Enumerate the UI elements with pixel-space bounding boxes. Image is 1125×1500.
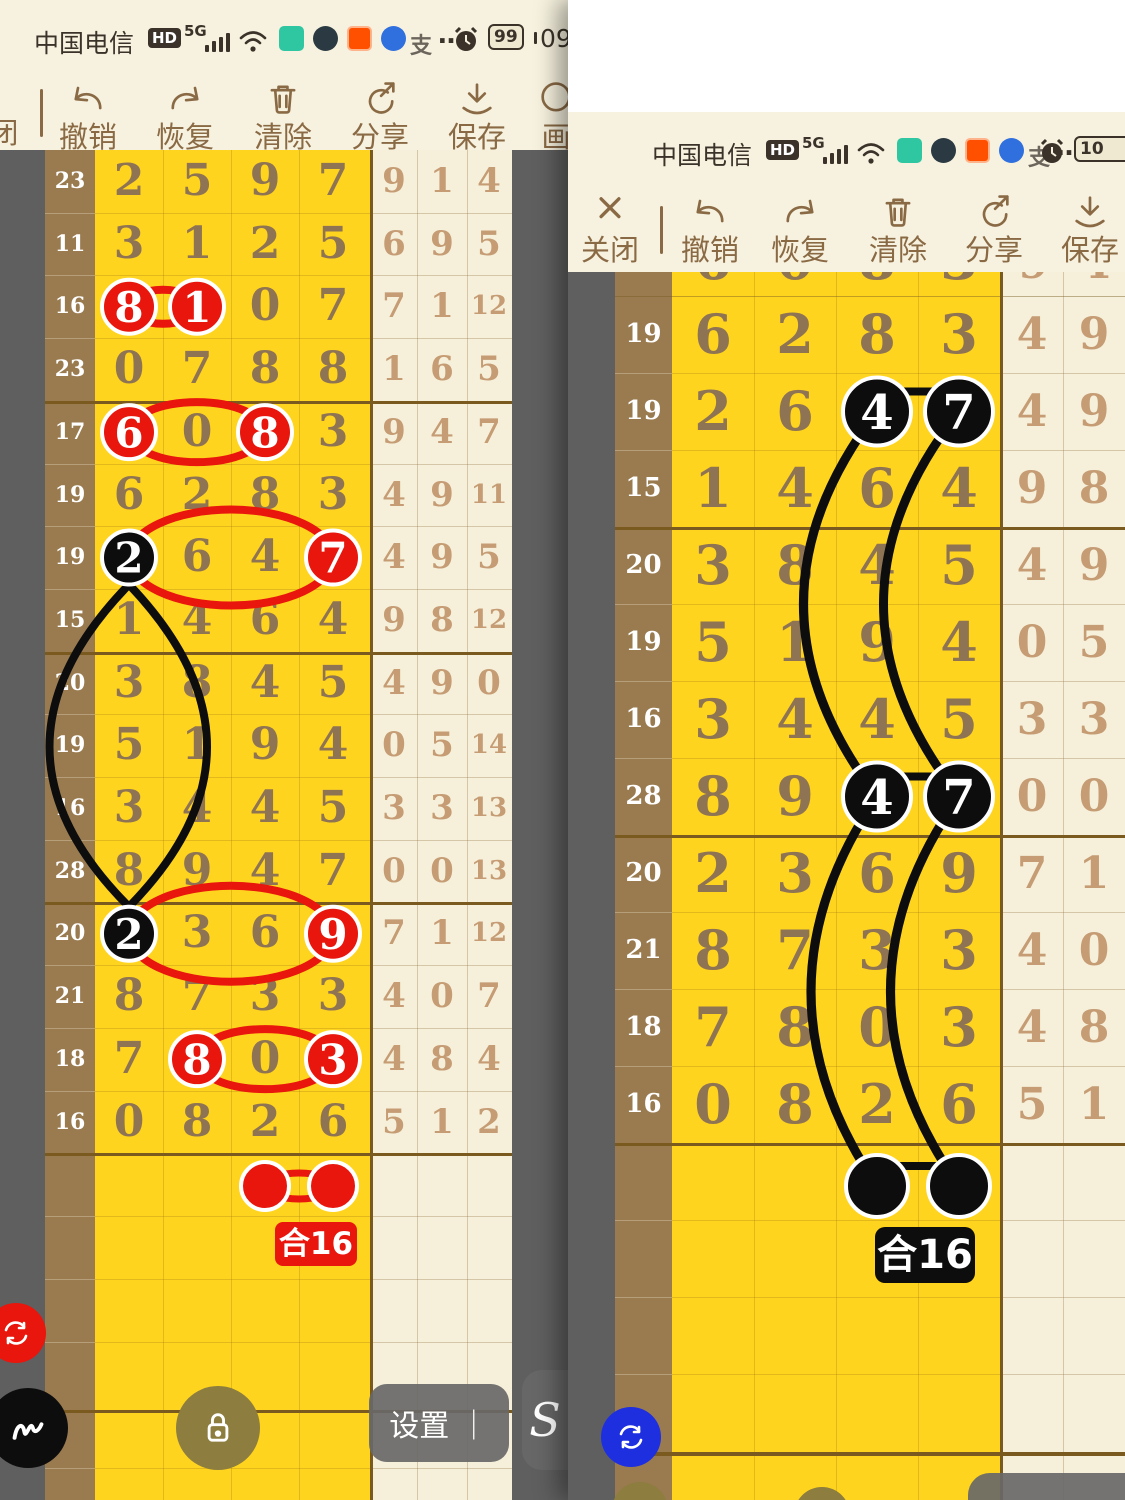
gridline: [45, 1468, 95, 1469]
gridline: [373, 1342, 512, 1343]
digit-cell[interactable]: 1: [163, 714, 231, 777]
digit-cell[interactable]: 13: [466, 777, 512, 840]
trash-icon: [263, 102, 303, 121]
digit-cell[interactable]: 4: [231, 777, 299, 840]
digit-cell[interactable]: 3: [836, 912, 918, 989]
share-button[interactable]: 分享: [944, 192, 1044, 266]
redo-button[interactable]: 恢复: [750, 192, 850, 266]
digit-cell[interactable]: 9: [918, 835, 1000, 912]
digit-cell[interactable]: 7: [163, 338, 231, 401]
row-label: 19: [45, 526, 95, 589]
toolbar: 关闭 撤销 恢复 清除 分享 保存: [568, 188, 1125, 272]
settings-bar-partial[interactable]: [968, 1473, 1125, 1500]
digit-cell[interactable]: 9: [231, 714, 299, 777]
carrier-label: 中国电信: [652, 136, 752, 172]
row-label: 16: [45, 777, 95, 840]
row-label: 21: [45, 965, 95, 1028]
scribble-icon: [6, 1408, 50, 1448]
digit-cell[interactable]: 0: [419, 840, 465, 903]
row-label: 19: [45, 714, 95, 777]
digit-cell[interactable]: 9: [1064, 373, 1124, 450]
digit-cell[interactable]: 8: [754, 989, 836, 1066]
digit-cell[interactable]: 8: [163, 1028, 231, 1091]
clear-button[interactable]: 清除: [233, 79, 333, 153]
digit-cell[interactable]: 7: [918, 758, 1000, 835]
digit-cell[interactable]: 7: [1002, 835, 1062, 912]
taobao-icon: [347, 26, 372, 51]
digit-cell[interactable]: 8: [419, 1028, 465, 1091]
alipay-icon: 支: [410, 28, 432, 60]
digit-cell[interactable]: 4: [163, 589, 231, 652]
gridline: [417, 150, 418, 1500]
left-chart-canvas[interactable]: 2325979141131256951681077112230788165176…: [0, 150, 568, 1500]
digit-cell[interactable]: 4: [836, 527, 918, 604]
digit-cell-partial: 4: [1065, 272, 1125, 292]
row-label: 15: [615, 450, 672, 527]
digit-cell-partial: 8: [836, 272, 918, 292]
gridline: [615, 1374, 672, 1375]
battery-indicator: 99: [488, 24, 524, 50]
digit-cell[interactable]: 0: [95, 1091, 163, 1154]
toolbar: 闭 撤销 恢复 清除 分享 保存: [0, 75, 568, 152]
carrier-label: 中国电信: [34, 24, 134, 60]
digit-cell[interactable]: 2: [672, 373, 754, 450]
digit-cell[interactable]: 0: [836, 989, 918, 1066]
digit-cell[interactable]: 4: [754, 450, 836, 527]
digit-cell[interactable]: 4: [918, 450, 1000, 527]
digit-cell[interactable]: 2: [672, 835, 754, 912]
digit-cell[interactable]: 2: [95, 526, 163, 589]
row-label: 19: [45, 464, 95, 527]
close-button[interactable]: 关闭: [568, 192, 660, 266]
digit-cell[interactable]: 3: [918, 912, 1000, 989]
battery-nub: [534, 32, 537, 44]
hd-badge: HD: [766, 140, 799, 160]
digit-cell[interactable]: 5: [371, 1091, 417, 1154]
digit-cell-partial: 6: [672, 272, 754, 292]
digit-cell[interactable]: 6: [836, 835, 918, 912]
redo-icon: [165, 102, 205, 121]
digit-cell[interactable]: 1: [1064, 835, 1124, 912]
digit-cell[interactable]: 5: [466, 338, 512, 401]
digit-cell[interactable]: 1: [1064, 1066, 1124, 1143]
digit-cell[interactable]: 3: [299, 1028, 367, 1091]
draw-icon: [536, 102, 568, 121]
statusbar: 中国电信 HD 5G 支 … 10: [568, 112, 1125, 188]
gridline: [95, 1216, 372, 1217]
row-label: 11: [45, 213, 95, 276]
digit-cell[interactable]: 7: [754, 912, 836, 989]
digit-cell[interactable]: 3: [918, 989, 1000, 1066]
digit-cell[interactable]: 8: [754, 1066, 836, 1143]
gridline: [373, 1468, 512, 1469]
sum-badge-red: 合16: [275, 1222, 357, 1266]
digit-cell[interactable]: 2: [836, 1066, 918, 1143]
app-icon-green: [897, 138, 922, 163]
digit-cell[interactable]: 2: [163, 464, 231, 527]
digit-cell[interactable]: 3: [371, 777, 417, 840]
app-icon-green: [279, 26, 304, 51]
digit-cell[interactable]: 8: [95, 840, 163, 903]
digit-cell[interactable]: 8: [163, 1091, 231, 1154]
digit-cell[interactable]: 2: [466, 1091, 512, 1154]
digit-cell[interactable]: 0: [371, 714, 417, 777]
row-label: 28: [45, 840, 95, 903]
digit-cell[interactable]: 5: [466, 526, 512, 589]
digit-cell[interactable]: 6: [371, 213, 417, 276]
row-label: 20: [45, 652, 95, 715]
left-screenshot-panel: 中国电信 HD 5G 支 … 99 09:: [0, 0, 568, 1500]
redo-icon: [780, 215, 820, 234]
digit-cell[interactable]: 9: [419, 652, 465, 715]
digit-cell[interactable]: 9: [754, 758, 836, 835]
row-label: 17: [45, 401, 95, 464]
digit-cell[interactable]: 1: [163, 213, 231, 276]
digit-cell[interactable]: 6: [918, 1066, 1000, 1143]
digit-cell[interactable]: 8: [419, 589, 465, 652]
digit-cell[interactable]: 5: [95, 714, 163, 777]
digit-cell[interactable]: 3: [672, 681, 754, 758]
digit-cell[interactable]: 5: [299, 213, 367, 276]
digit-cell[interactable]: 4: [299, 589, 367, 652]
digit-cell[interactable]: 12: [466, 589, 512, 652]
digit-cell[interactable]: 8: [836, 296, 918, 373]
group-divider: [615, 1143, 1125, 1146]
digit-cell[interactable]: 6: [231, 589, 299, 652]
white-top-strip: [568, 0, 1125, 112]
row-label: 23: [45, 338, 95, 401]
digit-cell[interactable]: 9: [419, 526, 465, 589]
digit-cell[interactable]: 6: [754, 373, 836, 450]
digit-cell[interactable]: 3: [299, 464, 367, 527]
digit-cell[interactable]: 7: [371, 902, 417, 965]
digit-cell[interactable]: 7: [371, 275, 417, 338]
wechat-icon: [931, 138, 956, 163]
digit-cell[interactable]: 0: [1064, 912, 1124, 989]
digit-cell[interactable]: 14: [466, 714, 512, 777]
digit-cell[interactable]: 6: [95, 401, 163, 464]
digit-cell[interactable]: 4: [1002, 912, 1062, 989]
digit-cell[interactable]: 5: [299, 652, 367, 715]
browser-icon: [999, 138, 1024, 163]
taobao-icon: [965, 138, 990, 163]
digit-cell[interactable]: 4: [419, 401, 465, 464]
digit-cell[interactable]: 7: [299, 840, 367, 903]
digit-cell[interactable]: 0: [231, 1028, 299, 1091]
digit-cell[interactable]: 3: [95, 777, 163, 840]
digit-cell[interactable]: 7: [466, 401, 512, 464]
wifi-icon: [856, 140, 886, 170]
row-label: 15: [45, 589, 95, 652]
alarm-icon: [1038, 138, 1066, 170]
digit-cell[interactable]: 9: [1002, 450, 1062, 527]
digit-cell[interactable]: 8: [95, 275, 163, 338]
digit-cell-partial: 9: [1003, 272, 1064, 292]
browser-icon: [381, 26, 406, 51]
row-label: 19: [615, 604, 672, 681]
digit-cell[interactable]: 4: [371, 1028, 417, 1091]
digit-cell[interactable]: 8: [163, 652, 231, 715]
digit-cell[interactable]: 2: [231, 1091, 299, 1154]
digit-cell[interactable]: 4: [836, 681, 918, 758]
digit-cell[interactable]: 2: [95, 150, 163, 213]
row-label: 16: [45, 275, 95, 338]
digit-cell[interactable]: 5: [466, 213, 512, 276]
gridline: [672, 1220, 1000, 1221]
alarm-icon: [452, 26, 480, 58]
digit-cell[interactable]: 5: [918, 527, 1000, 604]
digit-cell[interactable]: 4: [1002, 296, 1062, 373]
gridline: [615, 1220, 672, 1221]
digit-cell[interactable]: 0: [672, 1066, 754, 1143]
group-divider: [615, 1452, 1125, 1456]
digit-cell[interactable]: 4: [836, 373, 918, 450]
digit-cell[interactable]: 5: [672, 604, 754, 681]
digit-cell[interactable]: 8: [672, 758, 754, 835]
digit-cell[interactable]: 0: [1002, 604, 1062, 681]
undo-button[interactable]: 撤销: [660, 192, 760, 266]
digit-cell[interactable]: 6: [836, 450, 918, 527]
right-screenshot-panel: 中国电信 HD 5G 支 … 10 关闭: [568, 0, 1125, 1500]
digit-cell[interactable]: 9: [1064, 296, 1124, 373]
statusbar: 中国电信 HD 5G 支 … 99 09:: [0, 0, 568, 75]
sum-badge-black: 合16: [875, 1227, 975, 1283]
digit-cell[interactable]: 5: [299, 777, 367, 840]
digit-cell[interactable]: 12: [466, 902, 512, 965]
row-label: 19: [615, 373, 672, 450]
undo-icon: [690, 215, 730, 234]
gridline: [95, 1279, 372, 1280]
digit-cell-partial: 0: [754, 272, 836, 292]
digit-cell[interactable]: 9: [419, 464, 465, 527]
draw-button[interactable]: 画: [506, 79, 568, 153]
gridline: [1003, 1297, 1125, 1298]
digit-cell[interactable]: 9: [299, 902, 367, 965]
digit-cell[interactable]: 0: [231, 275, 299, 338]
digit-cell[interactable]: 2: [754, 296, 836, 373]
digit-cell[interactable]: 3: [672, 527, 754, 604]
signal-icon: [204, 30, 232, 58]
gridline: [615, 1297, 672, 1298]
digit-cell[interactable]: 8: [1064, 450, 1124, 527]
undo-icon: [68, 102, 108, 121]
row-label: 16: [615, 681, 672, 758]
row-label: 16: [45, 1091, 95, 1154]
digit-cell[interactable]: 4: [1002, 373, 1062, 450]
digit-cell[interactable]: 3: [419, 777, 465, 840]
pen-s-button[interactable]: S: [522, 1370, 568, 1470]
digit-cell[interactable]: 5: [163, 150, 231, 213]
gridline: [373, 1216, 512, 1217]
right-chart-canvas[interactable]: 6083941962834919264749151464982038454919…: [568, 272, 1125, 1500]
save-icon: [1070, 215, 1110, 234]
digit-cell[interactable]: 3: [754, 835, 836, 912]
digit-cell[interactable]: 1: [163, 275, 231, 338]
digit-cell[interactable]: 8: [231, 401, 299, 464]
digit-cell[interactable]: 4: [466, 1028, 512, 1091]
digit-cell[interactable]: 5: [1064, 604, 1124, 681]
digit-cell[interactable]: 7: [95, 1028, 163, 1091]
digit-cell[interactable]: 8: [231, 464, 299, 527]
gridline: [45, 1279, 95, 1280]
share-button[interactable]: 分享: [330, 79, 430, 153]
digit-cell[interactable]: 8: [299, 338, 367, 401]
digit-cell[interactable]: 3: [95, 652, 163, 715]
digit-cell[interactable]: 7: [466, 965, 512, 1028]
digit-cell[interactable]: 0: [1064, 758, 1124, 835]
row-label: 18: [615, 989, 672, 1066]
digit-cell[interactable]: 6: [231, 902, 299, 965]
digit-cell[interactable]: 9: [371, 589, 417, 652]
digit-cell[interactable]: 9: [163, 840, 231, 903]
gridline: [373, 1279, 512, 1280]
digit-cell[interactable]: 7: [299, 275, 367, 338]
digit-cell[interactable]: 8: [1064, 989, 1124, 1066]
group-divider: [45, 1153, 512, 1156]
row-label: 18: [45, 1028, 95, 1091]
digit-cell[interactable]: 3: [918, 296, 1000, 373]
row-label: 16: [615, 1066, 672, 1143]
wifi-icon: [238, 28, 268, 58]
digit-cell[interactable]: 3: [95, 213, 163, 276]
digit-cell[interactable]: 4: [1002, 527, 1062, 604]
digit-cell[interactable]: 1: [371, 338, 417, 401]
digit-cell[interactable]: 3: [1002, 681, 1062, 758]
digit-cell[interactable]: 3: [231, 965, 299, 1028]
digit-cell[interactable]: 1: [754, 604, 836, 681]
digit-cell[interactable]: 5: [419, 714, 465, 777]
row-label: 20: [615, 835, 672, 912]
undo-button[interactable]: 撤销: [38, 79, 138, 153]
digit-cell[interactable]: 3: [1064, 681, 1124, 758]
digit-cell[interactable]: 5: [918, 681, 1000, 758]
row-label: 20: [615, 527, 672, 604]
digit-cell[interactable]: 1: [672, 450, 754, 527]
save-icon: [457, 102, 497, 121]
blue-refresh-button[interactable]: [601, 1407, 661, 1467]
digit-cell[interactable]: 6: [672, 296, 754, 373]
share-icon: [974, 215, 1014, 234]
clock-label: 09:: [540, 24, 568, 53]
digit-cell[interactable]: 9: [1064, 527, 1124, 604]
digit-cell[interactable]: 0: [163, 401, 231, 464]
digit-cell[interactable]: 7: [672, 989, 754, 1066]
lock-icon: [198, 1408, 238, 1448]
digit-cell[interactable]: 4: [371, 965, 417, 1028]
digit-cell[interactable]: 12: [466, 275, 512, 338]
digit-cell[interactable]: 4: [1002, 989, 1062, 1066]
redo-button[interactable]: 恢复: [135, 79, 235, 153]
digit-cell[interactable]: 6: [299, 1091, 367, 1154]
clear-button[interactable]: 清除: [848, 192, 948, 266]
row-label: 21: [615, 912, 672, 989]
digit-cell[interactable]: 3: [163, 902, 231, 965]
digit-cell[interactable]: 1: [419, 275, 465, 338]
digit-cell[interactable]: 6: [95, 464, 163, 527]
digit-cell[interactable]: 4: [231, 526, 299, 589]
digit-cell[interactable]: 0: [1002, 758, 1062, 835]
gridline: [95, 1342, 372, 1343]
battery-indicator: 10: [1074, 136, 1125, 162]
digit-cell[interactable]: 9: [371, 150, 417, 213]
digit-cell[interactable]: 4: [754, 681, 836, 758]
partial-row: 6083: [672, 272, 1000, 296]
digit-cell[interactable]: 5: [1002, 1066, 1062, 1143]
wechat-icon: [313, 26, 338, 51]
gridline: [672, 1374, 1000, 1375]
digit-cell[interactable]: 7: [918, 373, 1000, 450]
digit-cell[interactable]: 8: [95, 965, 163, 1028]
screen: 中国电信 HD 5G 支 … 99 09:: [0, 0, 1125, 1500]
digit-cell[interactable]: 4: [836, 758, 918, 835]
digit-cell[interactable]: 1: [419, 1091, 465, 1154]
digit-cell[interactable]: 0: [419, 965, 465, 1028]
digit-cell[interactable]: 9: [231, 150, 299, 213]
digit-cell[interactable]: 4: [371, 526, 417, 589]
digit-cell[interactable]: 6: [163, 526, 231, 589]
partial-row: 94: [1003, 272, 1125, 296]
digit-cell[interactable]: 9: [419, 213, 465, 276]
share-icon: [360, 102, 400, 121]
digit-cell[interactable]: 3: [299, 965, 367, 1028]
gridline: [45, 1342, 95, 1343]
trash-icon: [878, 215, 918, 234]
row-label: 20: [45, 902, 95, 965]
digit-cell[interactable]: 8: [672, 912, 754, 989]
digit-cell[interactable]: 11: [466, 464, 512, 527]
save-button[interactable]: 保存: [1040, 192, 1125, 266]
digit-cell[interactable]: 2: [231, 213, 299, 276]
gridline: [45, 1216, 95, 1217]
digit-cell[interactable]: 3: [299, 401, 367, 464]
digit-cell[interactable]: 7: [299, 526, 367, 589]
digit-cell[interactable]: 2: [95, 902, 163, 965]
digit-cell[interactable]: 8: [231, 338, 299, 401]
row-label: 19: [615, 296, 672, 373]
digit-cell[interactable]: 4: [371, 652, 417, 715]
digit-cell[interactable]: 4: [163, 777, 231, 840]
gridline: [1003, 1374, 1125, 1375]
digit-cell[interactable]: 4: [466, 150, 512, 213]
digit-cell[interactable]: 8: [754, 527, 836, 604]
digit-cell-partial: 3: [918, 272, 1000, 292]
digit-cell[interactable]: 1: [419, 150, 465, 213]
digit-cell[interactable]: 4: [918, 604, 1000, 681]
hd-badge: HD: [148, 28, 181, 48]
digit-cell[interactable]: 4: [231, 652, 299, 715]
row-label: 23: [45, 150, 95, 213]
digit-cell[interactable]: 1: [95, 589, 163, 652]
digit-cell[interactable]: 9: [371, 401, 417, 464]
digit-cell[interactable]: 4: [231, 840, 299, 903]
digit-cell[interactable]: 0: [95, 338, 163, 401]
settings-button[interactable]: 设置 ｜: [369, 1384, 509, 1462]
digit-cell[interactable]: 0: [466, 652, 512, 715]
digit-cell[interactable]: 4: [299, 714, 367, 777]
gridline: [1003, 1220, 1125, 1221]
gridline: [95, 1468, 372, 1469]
digit-cell[interactable]: 1: [419, 902, 465, 965]
digit-cell[interactable]: 13: [466, 840, 512, 903]
digit-cell[interactable]: 9: [836, 604, 918, 681]
digit-cell[interactable]: 4: [371, 464, 417, 527]
gridline: [672, 1297, 1000, 1298]
digit-cell[interactable]: 6: [419, 338, 465, 401]
lock-button[interactable]: [176, 1386, 260, 1470]
digit-cell[interactable]: 7: [163, 965, 231, 1028]
digit-cell[interactable]: 7: [299, 150, 367, 213]
digit-cell[interactable]: 0: [371, 840, 417, 903]
